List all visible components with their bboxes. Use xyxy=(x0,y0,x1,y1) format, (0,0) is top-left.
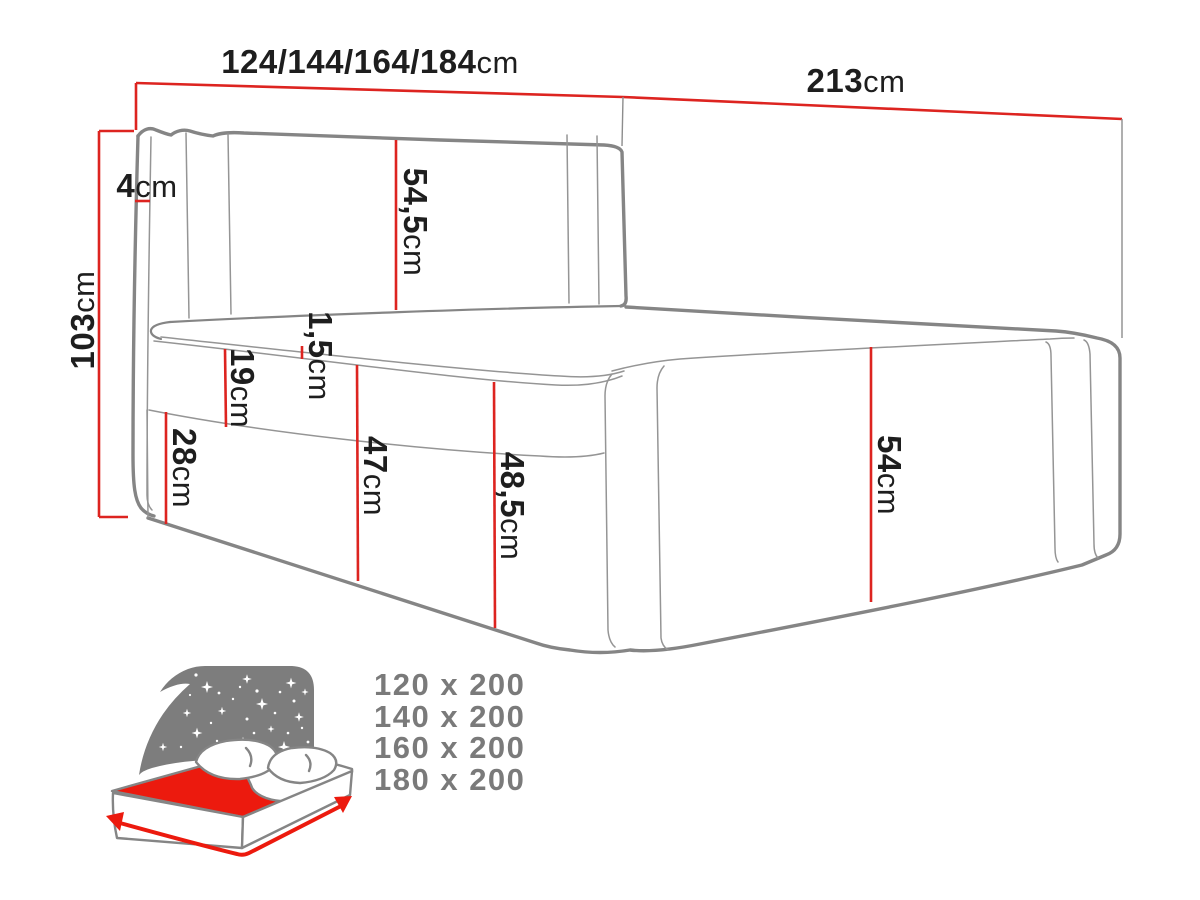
headboard-seam xyxy=(567,135,569,303)
headboard-seam xyxy=(597,136,599,304)
star-dot-icon xyxy=(255,689,258,692)
star-dot-icon xyxy=(239,686,241,688)
bed-outline-path xyxy=(148,307,1120,653)
dimension-label-base-height: 28cm xyxy=(166,428,203,508)
dimension-labels: 124/144/164/184cm 213cm 103cm 4cm 54,5cm… xyxy=(64,43,908,560)
dimension-label-front-mid: 47cm xyxy=(357,436,394,516)
star-dot-icon xyxy=(293,700,296,703)
bed-outline xyxy=(133,129,1120,653)
star-dot-icon xyxy=(246,718,249,721)
star-dot-icon xyxy=(218,692,221,695)
foot-corner-seam xyxy=(1046,342,1058,562)
star-dot-icon xyxy=(307,741,310,744)
dimension-label-width: 124/144/164/184cm xyxy=(221,43,519,80)
dimension-label-wing: 4cm xyxy=(116,167,177,204)
star-dot-icon xyxy=(279,691,282,694)
dimension-label-mattress-edge: 1,5cm xyxy=(302,311,339,401)
base-side-top-edge xyxy=(612,338,1074,371)
star-dot-icon xyxy=(287,732,290,735)
star-dot-icon xyxy=(180,746,182,748)
star-dot-icon xyxy=(301,727,303,729)
size-item: 160 x 200 xyxy=(374,730,525,765)
mattress-corner xyxy=(151,322,170,339)
headboard-seam xyxy=(186,133,189,318)
star-dot-icon xyxy=(194,673,197,676)
star-dot-icon xyxy=(189,694,191,696)
available-sizes-list: 120 x 200 140 x 200 160 x 200 180 x 200 xyxy=(374,667,525,797)
headboard-top-edge xyxy=(138,129,626,306)
dimension-label-front-corner: 48,5cm xyxy=(494,452,531,561)
base-near-corner-edge xyxy=(657,366,668,650)
dimension-label-mattress-height: 19cm xyxy=(224,348,261,428)
dimension-label-headboard-front: 54,5cm xyxy=(397,168,434,277)
size-item: 120 x 200 xyxy=(374,667,525,702)
dimension-label-side-foot: 54cm xyxy=(871,435,908,515)
star-dot-icon xyxy=(253,732,256,735)
headboard-seam xyxy=(228,134,231,314)
base-left-edge xyxy=(147,410,148,517)
star-dot-icon xyxy=(274,712,277,715)
width-dimension-line xyxy=(136,83,623,97)
size-arrow-head-right xyxy=(334,796,352,813)
length-dimension-line xyxy=(623,97,1122,119)
base-near-corner-seam xyxy=(605,374,615,647)
bed-size-icon xyxy=(106,666,352,855)
dimension-label-total-height: 103cm xyxy=(64,271,101,370)
dimension-label-length: 213cm xyxy=(807,62,906,99)
bed-dimension-diagram: 124/144/164/184cm 213cm 103cm 4cm 54,5cm… xyxy=(0,0,1200,900)
length-dimension-tick-left xyxy=(622,97,623,146)
star-dot-icon xyxy=(210,722,212,724)
size-item: 140 x 200 xyxy=(374,699,525,734)
size-item: 180 x 200 xyxy=(374,762,525,797)
star-dot-icon xyxy=(232,698,234,700)
foot-corner-seam xyxy=(1084,340,1098,558)
